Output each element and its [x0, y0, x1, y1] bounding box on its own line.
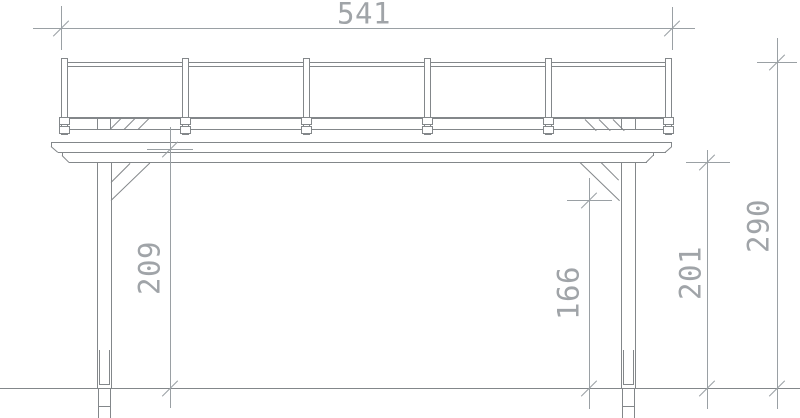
knee-brace-right-outer: [580, 162, 620, 201]
post-left-edge-a: [97, 162, 98, 388]
post-left-through-line-a: [97, 119, 98, 129]
post-left-footing-bar: [98, 406, 111, 407]
baluster-1-collar-upper: [59, 117, 70, 125]
dim-290-line: [777, 38, 778, 409]
rim-joist-bottom: [59, 129, 672, 130]
post-right-anchor-base: [623, 384, 634, 385]
dim-label-290: 290: [745, 199, 774, 253]
baluster-4-collar-upper: [422, 117, 433, 125]
knee-brace-left-inner: [111, 163, 131, 183]
post-left-anchor-base: [99, 384, 110, 385]
post-right-footing-b: [634, 389, 635, 418]
post-right-anchor-b: [633, 350, 634, 384]
post-right-footing-a: [622, 389, 623, 418]
fascia-upper-bottom: [58, 152, 666, 153]
baluster-6-collar-lower: [663, 126, 674, 134]
baluster-4-collar-lower: [422, 126, 433, 134]
handrail-top: [62, 62, 672, 63]
knee-brace-right-inner: [601, 162, 619, 180]
fascia-lower-right-chamfer: [646, 155, 654, 163]
baluster-3-collar-upper: [301, 117, 312, 125]
post-right-anchor-a: [623, 350, 624, 384]
fascia-upper-right-chamfer: [665, 146, 672, 153]
baluster-6-collar-upper: [663, 117, 674, 125]
baluster-2-collar-upper: [180, 117, 191, 125]
post-left-edge-b: [111, 162, 112, 388]
roof-deck-top-edge: [59, 117, 672, 119]
dim-209-line: [170, 127, 171, 408]
knee-brace-left-outer: [111, 163, 151, 201]
post-left-anchor-b: [109, 350, 110, 384]
baluster-2-collar-lower: [180, 126, 191, 134]
fascia-upper-top: [51, 142, 672, 143]
dim-label-209: 209: [136, 241, 165, 295]
baluster-1-collar-lower: [59, 126, 70, 134]
ground-line: [0, 388, 800, 389]
post-right-footing-bar: [622, 406, 635, 407]
dim-label-201: 201: [677, 246, 706, 300]
post-left-footing-b: [110, 389, 111, 418]
dim-label-166: 166: [555, 266, 584, 320]
fascia-upper-left-chamfer: [51, 146, 58, 153]
baluster-3-collar-lower: [301, 126, 312, 134]
handrail-bottom: [62, 66, 672, 67]
baluster-5-collar-upper: [543, 117, 554, 125]
post-right-edge-b: [635, 162, 636, 388]
post-left-footing-a: [98, 389, 99, 418]
post-right-through-line-b: [635, 119, 636, 129]
dim-166-line: [589, 178, 590, 409]
post-left-anchor-a: [99, 350, 100, 384]
fascia-lower-left-chamfer: [62, 155, 70, 163]
post-right-edge-a: [621, 162, 622, 388]
fascia-lower-bottom: [69, 162, 647, 163]
baluster-5-collar-lower: [543, 126, 554, 134]
dim-label-541: 541: [337, 0, 391, 29]
technical-drawing: 541 209 166 201 290: [0, 0, 800, 418]
